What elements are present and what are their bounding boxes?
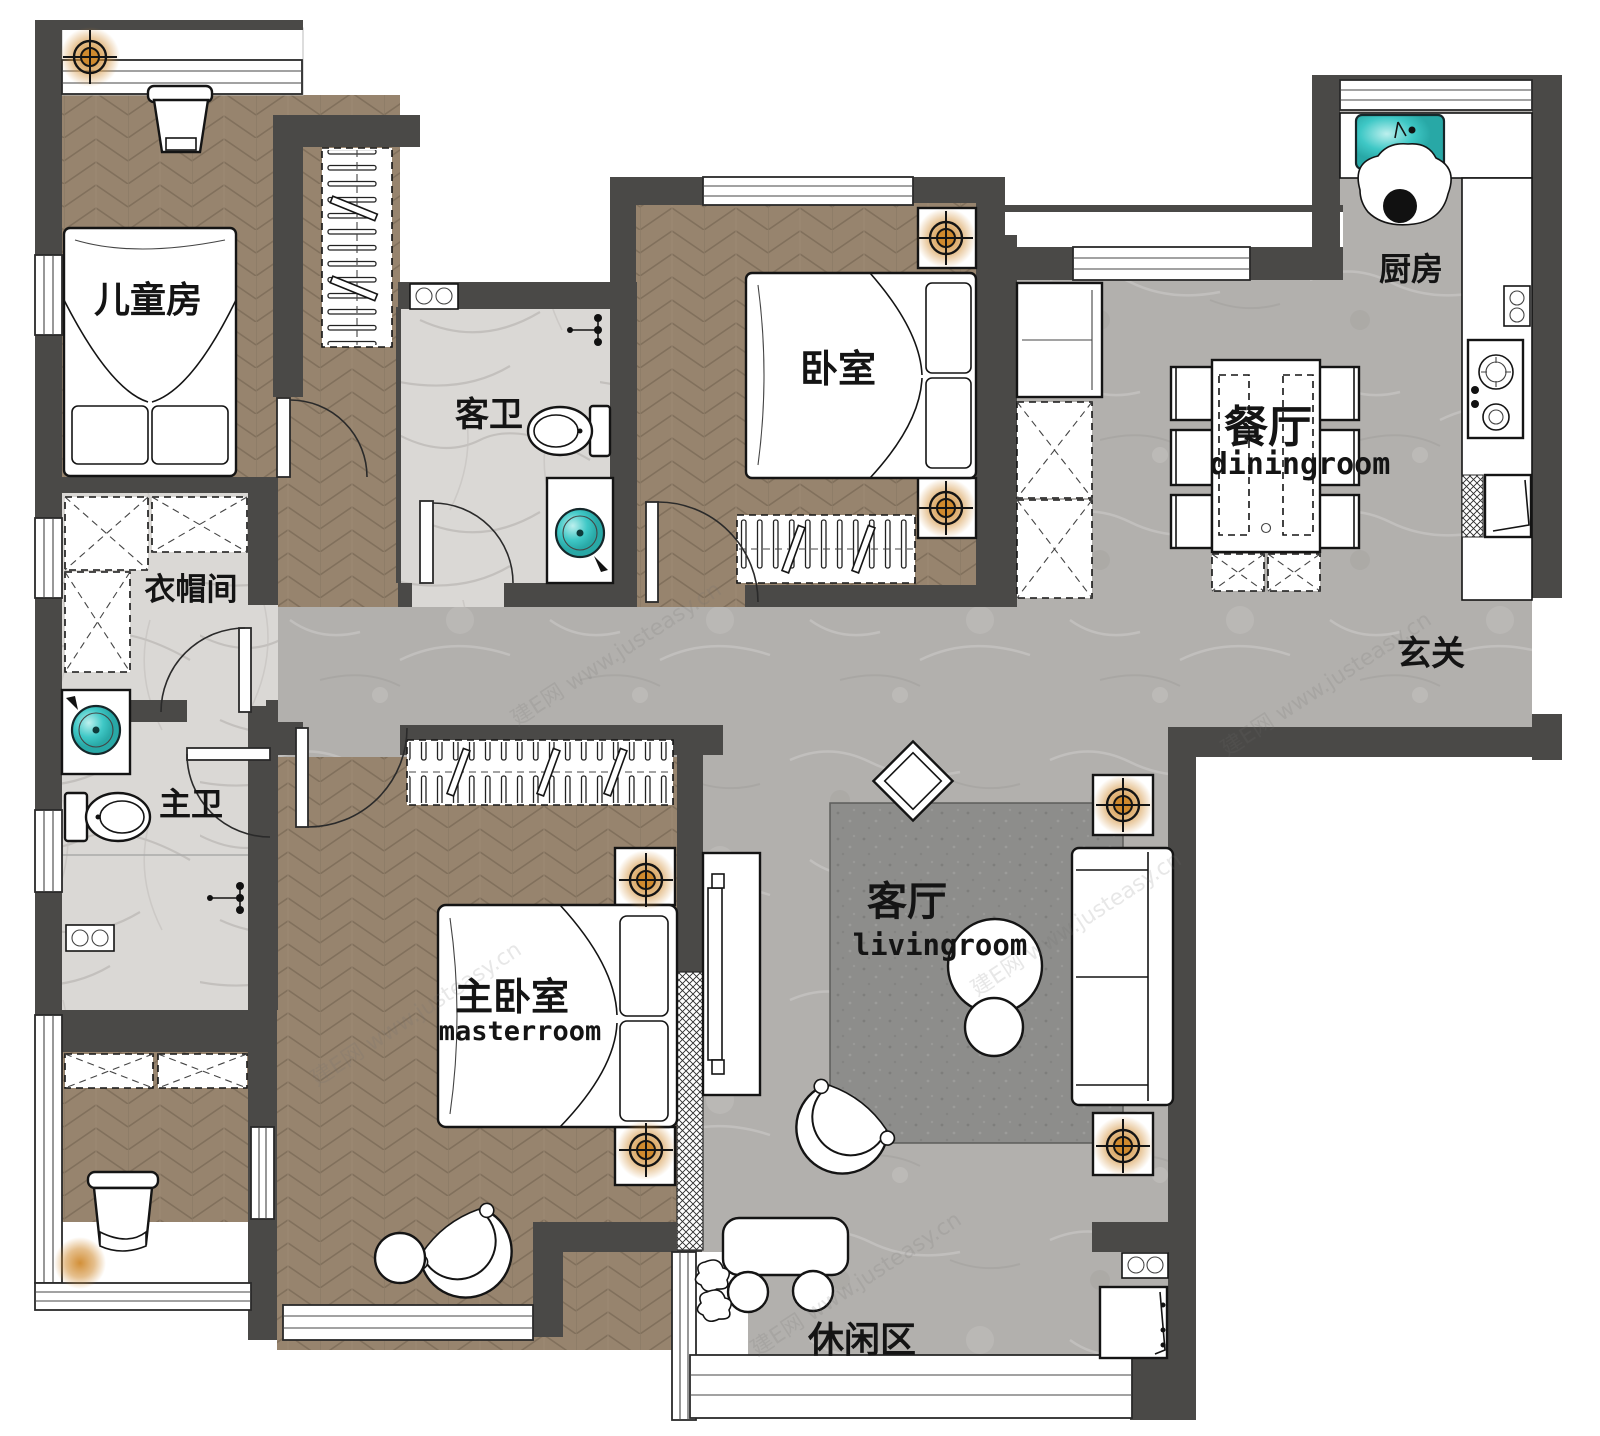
label-master-bath: 主卫 bbox=[159, 785, 223, 823]
floor-plan-svg: 建E网 www.justeasy.cn建E网 www.justeasy.cn建E… bbox=[0, 0, 1600, 1436]
sliding-door-balcony[interactable] bbox=[251, 1127, 274, 1219]
floor-plan-canvas: 建E网 www.justeasy.cn建E网 www.justeasy.cn建E… bbox=[0, 0, 1600, 1436]
ceiling-light-living-n bbox=[1093, 775, 1153, 835]
master-side-table bbox=[375, 1233, 425, 1283]
window-bedroom-top bbox=[703, 177, 913, 205]
label-living: 客厅 bbox=[867, 879, 947, 925]
washing-machine bbox=[1100, 1287, 1167, 1358]
wardrobe-master bbox=[407, 740, 673, 805]
window-master-bottom bbox=[283, 1305, 533, 1340]
leisure-switch[interactable] bbox=[1122, 1253, 1168, 1278]
childrens-bed bbox=[64, 228, 236, 476]
master-toilet bbox=[65, 793, 150, 841]
ceiling-light-master-s bbox=[616, 1120, 676, 1180]
ceiling-light-living-s bbox=[1093, 1116, 1153, 1176]
tv-unit bbox=[703, 853, 760, 1095]
ceiling-light-bedroom-n bbox=[916, 208, 976, 268]
balcony-chair bbox=[88, 1172, 158, 1251]
wardrobe-corridor bbox=[322, 148, 392, 347]
label-master-bedroom-en: masterroom bbox=[439, 1016, 602, 1047]
balcony-lamp-glow bbox=[54, 1237, 106, 1289]
shoe-cabinet-hall bbox=[1017, 283, 1102, 598]
ceiling-light-master-n bbox=[616, 850, 676, 910]
window-dining-bay bbox=[1073, 247, 1250, 280]
master-bath-switch[interactable] bbox=[66, 925, 114, 951]
label-guest-bath: 客卫 bbox=[455, 395, 523, 435]
coffee-table-small bbox=[965, 998, 1023, 1056]
bar-stool-1 bbox=[728, 1272, 768, 1312]
label-foyer: 玄关 bbox=[1397, 634, 1465, 674]
label-leisure: 休闲区 bbox=[807, 1320, 916, 1361]
gas-stove bbox=[1468, 340, 1523, 438]
kitchen-hatch-block bbox=[1462, 475, 1483, 537]
guest-bath-switch[interactable] bbox=[410, 284, 458, 309]
label-dining: 餐厅 bbox=[1224, 402, 1312, 453]
tv-screen bbox=[708, 888, 722, 1060]
lamp-glows bbox=[54, 1237, 106, 1289]
dining-bay-floor bbox=[1005, 212, 1343, 250]
window-leisure-bottom bbox=[690, 1355, 1132, 1418]
kitchen-switch[interactable] bbox=[1504, 286, 1530, 326]
label-living-en: livingroom bbox=[853, 928, 1028, 962]
window-left-2 bbox=[35, 518, 62, 598]
label-dining-en: diningroom bbox=[1210, 447, 1391, 482]
bar-table bbox=[723, 1218, 848, 1275]
label-master-bedroom: 主卧室 bbox=[455, 975, 569, 1019]
window-balcony-sw-left bbox=[35, 1015, 62, 1283]
ceiling-light-childrens bbox=[60, 27, 120, 87]
label-kitchen: 厨房 bbox=[1379, 250, 1443, 288]
entrance-door-opening bbox=[1532, 598, 1562, 714]
label-cloakroom: 衣帽间 bbox=[145, 572, 238, 608]
window-balcony-sw-bottom bbox=[35, 1283, 251, 1310]
guest-toilet bbox=[528, 406, 610, 456]
wardrobe-bedroom bbox=[737, 515, 915, 583]
label-bedroom: 卧室 bbox=[800, 347, 876, 391]
ceiling-light-bedroom-s bbox=[916, 478, 976, 538]
window-left-1 bbox=[35, 255, 62, 335]
refrigerator bbox=[1485, 475, 1531, 537]
label-childrens-room: 儿童房 bbox=[94, 279, 202, 321]
tv-feature-wall-hatch bbox=[677, 972, 703, 1250]
balcony-furniture bbox=[88, 1172, 158, 1251]
window-left-3 bbox=[35, 810, 62, 892]
window-kitchen-top bbox=[1340, 80, 1532, 110]
